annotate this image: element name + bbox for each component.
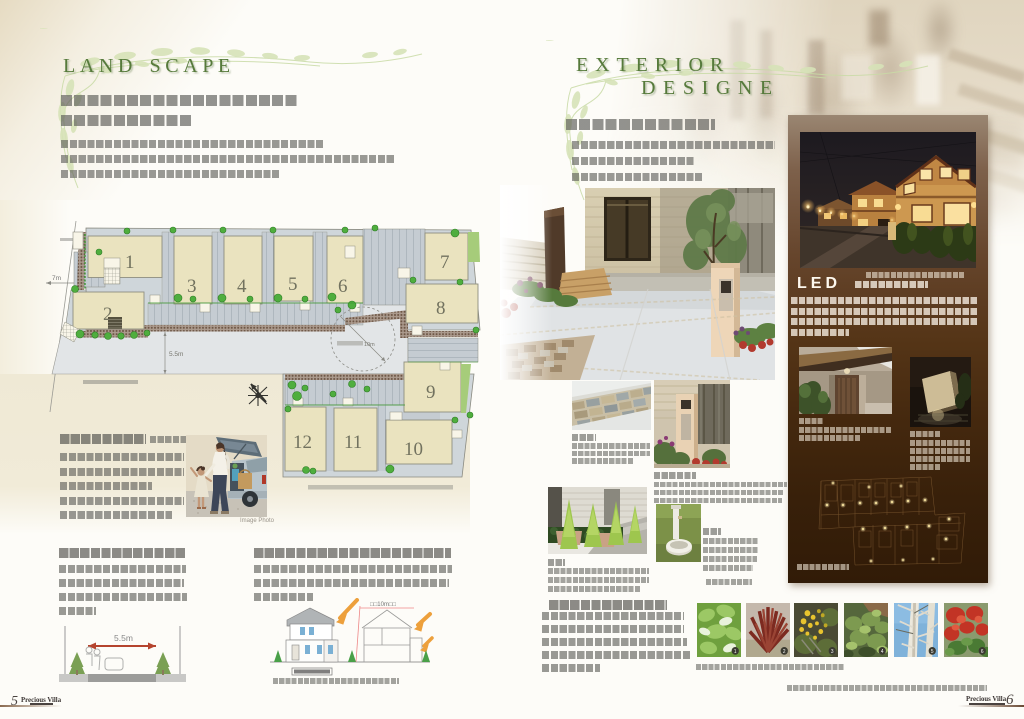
svg-text:11: 11 xyxy=(344,432,362,453)
svg-text:5: 5 xyxy=(931,649,934,655)
svg-text:3: 3 xyxy=(187,276,197,297)
svg-text:9: 9 xyxy=(426,382,436,403)
svg-text:3: 3 xyxy=(831,649,834,655)
svg-text:6: 6 xyxy=(981,649,984,655)
svg-text:1: 1 xyxy=(125,252,135,273)
svg-text:1: 1 xyxy=(734,649,737,655)
svg-text:6: 6 xyxy=(338,276,348,297)
svg-text:12: 12 xyxy=(293,432,312,453)
svg-text:10: 10 xyxy=(404,439,423,460)
svg-text:7: 7 xyxy=(440,252,450,273)
svg-text:7m: 7m xyxy=(52,275,61,282)
svg-text:8: 8 xyxy=(436,298,446,319)
svg-text:10m: 10m xyxy=(364,342,375,348)
svg-text:5.5m: 5.5m xyxy=(114,633,133,643)
svg-text:□□10m□□: □□10m□□ xyxy=(370,602,397,608)
svg-text:4: 4 xyxy=(881,649,884,655)
svg-text:5.5m: 5.5m xyxy=(169,351,183,358)
svg-text:2: 2 xyxy=(783,649,786,655)
svg-text:5: 5 xyxy=(288,274,298,295)
svg-text:4: 4 xyxy=(237,276,247,297)
